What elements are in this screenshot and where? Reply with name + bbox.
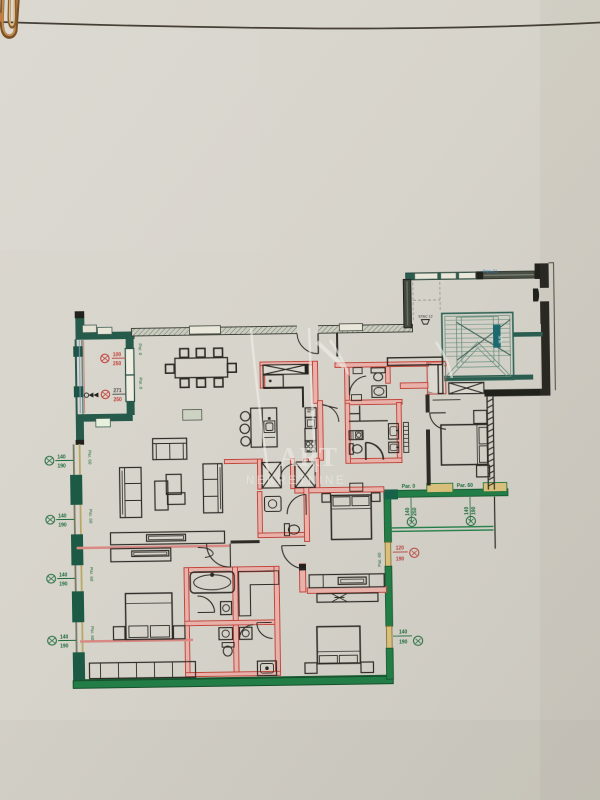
svg-text:Par. 60: Par. 60 bbox=[377, 552, 382, 567]
svg-text:Pas 21: Pas 21 bbox=[483, 269, 498, 275]
svg-text:140: 140 bbox=[59, 572, 68, 578]
svg-text:Par. 60: Par. 60 bbox=[89, 567, 94, 582]
svg-text:190: 190 bbox=[396, 556, 405, 562]
svg-text:Par. 0: Par. 0 bbox=[138, 377, 143, 389]
svg-text:140: 140 bbox=[399, 629, 408, 635]
svg-text:Par. 60: Par. 60 bbox=[457, 483, 473, 489]
svg-text:Par. 60: Par. 60 bbox=[87, 450, 92, 465]
svg-text:190: 190 bbox=[57, 463, 66, 469]
svg-text:Par. 60: Par. 60 bbox=[88, 509, 93, 524]
svg-text:NEKRETNINE: NEKRETNINE bbox=[246, 475, 346, 487]
svg-text:STAC 12: STAC 12 bbox=[418, 315, 432, 319]
svg-text:250: 250 bbox=[412, 507, 418, 516]
svg-text:Par. 0: Par. 0 bbox=[402, 484, 416, 490]
svg-text:140: 140 bbox=[58, 513, 67, 519]
svg-text:140: 140 bbox=[405, 507, 411, 516]
svg-text:190: 190 bbox=[59, 581, 68, 587]
svg-text:250: 250 bbox=[113, 361, 122, 367]
svg-text:190: 190 bbox=[58, 522, 67, 528]
svg-text:271: 271 bbox=[113, 388, 122, 394]
svg-text:Par. 0: Par. 0 bbox=[138, 343, 143, 355]
svg-text:ART: ART bbox=[279, 442, 338, 472]
svg-text:250: 250 bbox=[113, 397, 122, 403]
svg-text:100: 100 bbox=[113, 352, 122, 358]
svg-text:190: 190 bbox=[471, 506, 477, 515]
svg-text:shk: shk bbox=[497, 336, 503, 344]
svg-text:Par. 60: Par. 60 bbox=[90, 626, 95, 641]
svg-text:190: 190 bbox=[60, 643, 69, 649]
svg-text:140: 140 bbox=[464, 506, 470, 515]
svg-text:140: 140 bbox=[57, 454, 66, 460]
svg-text:120: 120 bbox=[396, 545, 405, 551]
svg-text:140: 140 bbox=[60, 634, 69, 640]
svg-text:190: 190 bbox=[399, 639, 408, 645]
